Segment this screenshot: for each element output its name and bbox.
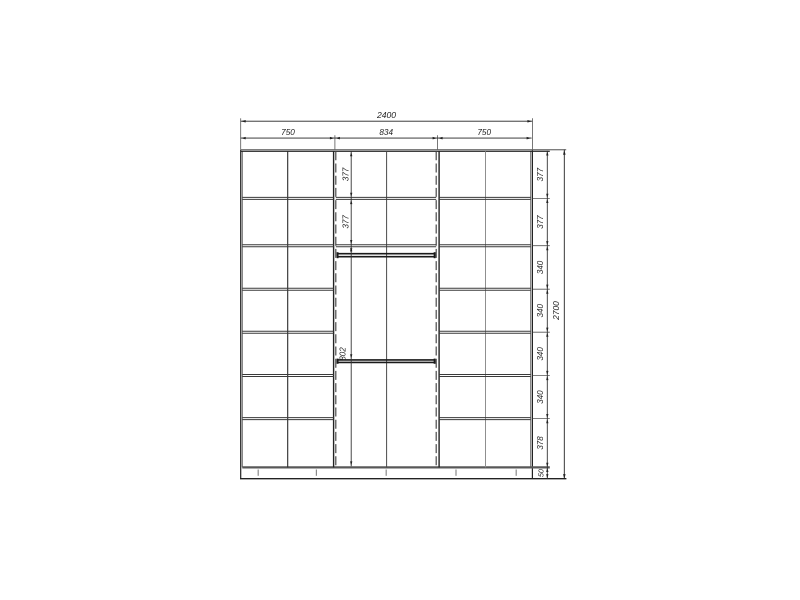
svg-text:377: 377 bbox=[341, 167, 350, 181]
svg-text:377: 377 bbox=[536, 167, 545, 181]
svg-text:340: 340 bbox=[536, 303, 545, 317]
svg-text:750: 750 bbox=[281, 128, 295, 137]
svg-text:340: 340 bbox=[536, 390, 545, 404]
svg-text:834: 834 bbox=[379, 128, 393, 137]
svg-text:2700: 2700 bbox=[551, 301, 561, 321]
svg-text:378: 378 bbox=[536, 436, 545, 450]
svg-text:802: 802 bbox=[339, 347, 348, 361]
svg-text:340: 340 bbox=[536, 347, 545, 361]
svg-text:377: 377 bbox=[536, 215, 545, 229]
svg-text:50: 50 bbox=[536, 468, 545, 477]
svg-text:377: 377 bbox=[341, 215, 350, 229]
svg-text:340: 340 bbox=[536, 260, 545, 274]
svg-text:750: 750 bbox=[477, 128, 491, 137]
svg-text:2400: 2400 bbox=[376, 110, 396, 120]
